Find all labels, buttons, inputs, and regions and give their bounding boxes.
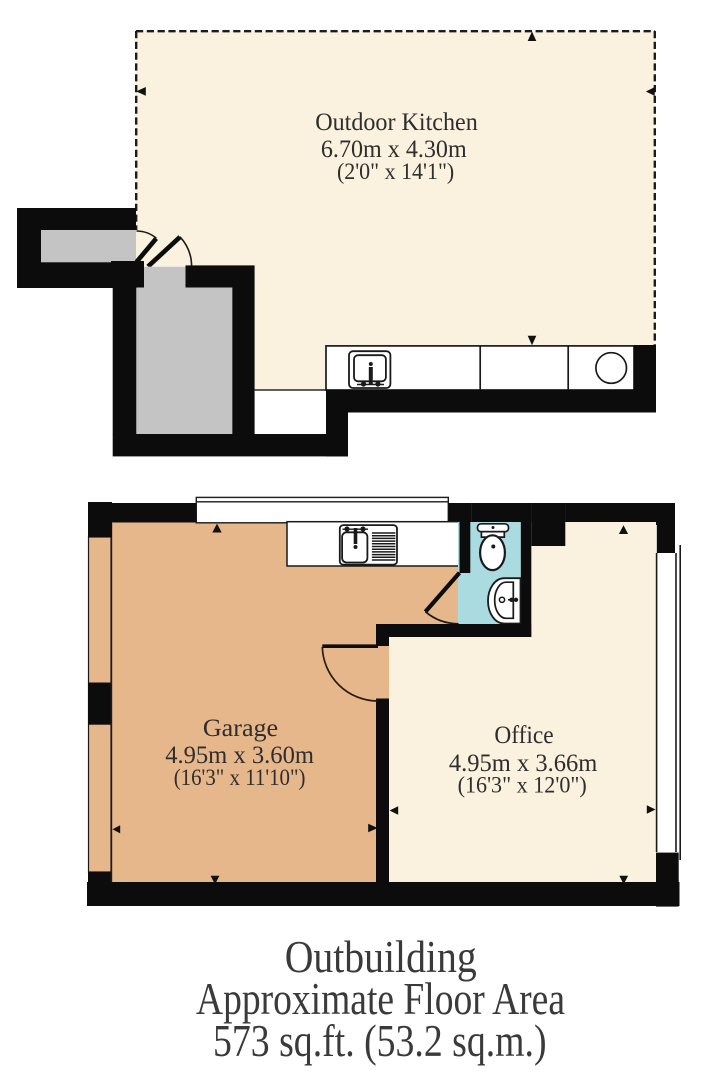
svg-text:(2'0" x 14'1"): (2'0" x 14'1"): [337, 159, 454, 184]
svg-text:Outdoor Kitchen: Outdoor Kitchen: [315, 109, 478, 136]
svg-text:Office: Office: [494, 722, 553, 749]
svg-text:(16'3" x 12'0"): (16'3" x 12'0"): [458, 773, 587, 798]
svg-text:Garage: Garage: [203, 715, 278, 742]
svg-text:573 sq.ft. (53.2 sq.m.): 573 sq.ft. (53.2 sq.m.): [213, 1016, 547, 1066]
svg-text:(16'3" x 11'10"): (16'3" x 11'10"): [174, 765, 306, 790]
